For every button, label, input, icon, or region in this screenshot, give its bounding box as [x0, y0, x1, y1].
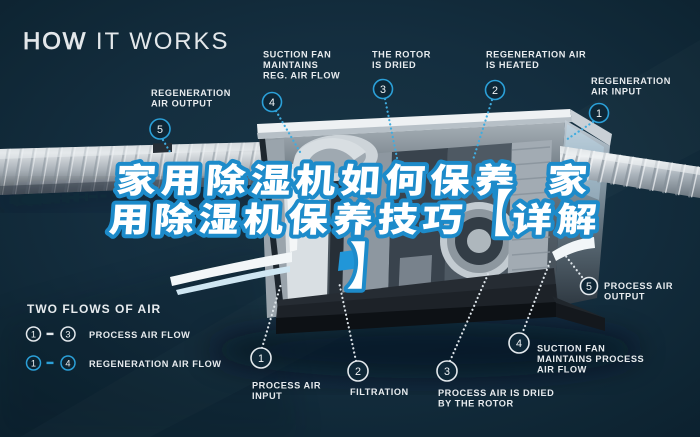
svg-text:PROCESS AIR IS DRIED: PROCESS AIR IS DRIED [438, 388, 554, 398]
svg-text:1: 1 [596, 108, 602, 120]
svg-text:REGENERATION AIR: REGENERATION AIR [486, 50, 586, 60]
svg-text:SUCTION FAN: SUCTION FAN [263, 50, 331, 60]
svg-text:REGENERATION AIR FLOW: REGENERATION AIR FLOW [89, 359, 222, 369]
svg-text:2: 2 [355, 366, 361, 378]
svg-text:5: 5 [586, 281, 592, 293]
svg-text:HOW IT WORKS: HOW IT WORKS [23, 28, 229, 55]
svg-text:IS HEATED: IS HEATED [486, 60, 539, 70]
svg-text:1: 1 [31, 358, 36, 368]
svg-text:4: 4 [269, 97, 275, 109]
svg-text:PROCESS AIR FLOW: PROCESS AIR FLOW [89, 330, 190, 340]
svg-text:5: 5 [157, 124, 163, 136]
svg-text:MAINTAINS: MAINTAINS [263, 60, 318, 70]
svg-text:3: 3 [444, 366, 450, 378]
svg-text:3: 3 [380, 84, 386, 96]
svg-text:4: 4 [516, 338, 522, 350]
svg-text:THE ROTOR: THE ROTOR [372, 50, 431, 60]
svg-text:REGENERATION: REGENERATION [591, 76, 671, 86]
svg-text:OUTPUT: OUTPUT [604, 291, 645, 301]
svg-text:AIR OUTPUT: AIR OUTPUT [151, 98, 213, 108]
svg-text:REGENERATION: REGENERATION [151, 88, 231, 98]
svg-text:TWO FLOWS OF AIR: TWO FLOWS OF AIR [27, 302, 161, 316]
svg-text:MAINTAINS PROCESS: MAINTAINS PROCESS [537, 354, 644, 364]
svg-text:PROCESS AIR: PROCESS AIR [604, 281, 673, 291]
svg-text:AIR FLOW: AIR FLOW [537, 364, 587, 374]
svg-text:3: 3 [65, 329, 70, 339]
svg-text:REG. AIR FLOW: REG. AIR FLOW [263, 70, 340, 80]
svg-text:1: 1 [258, 353, 264, 365]
svg-text:PROCESS AIR: PROCESS AIR [252, 381, 321, 391]
svg-text:2: 2 [492, 85, 498, 97]
svg-text:BY THE ROTOR: BY THE ROTOR [438, 398, 514, 408]
svg-text:SUCTION FAN: SUCTION FAN [537, 344, 605, 354]
svg-text:1: 1 [31, 329, 36, 339]
svg-text:AIR INPUT: AIR INPUT [591, 86, 642, 96]
svg-text:INPUT: INPUT [252, 391, 282, 401]
svg-text:IS DRIED: IS DRIED [372, 60, 416, 70]
svg-text:4: 4 [65, 358, 70, 368]
svg-text:FILTRATION: FILTRATION [350, 387, 409, 397]
